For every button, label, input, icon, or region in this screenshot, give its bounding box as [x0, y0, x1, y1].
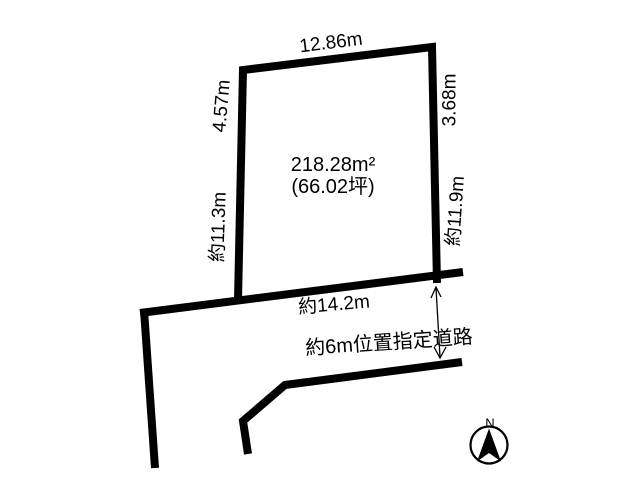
left-boundary-line [144, 310, 155, 468]
area-square-meters: 218.28m² [291, 154, 376, 176]
area-tsubo: (66.02坪) [291, 175, 374, 198]
compass: N [471, 416, 508, 464]
road-label: 約6m位置指定道路 [304, 325, 473, 360]
dimension-left-lower: 約11.3m [206, 191, 230, 262]
dimension-left-upper: 4.57m [209, 79, 235, 133]
north-arrow-icon [477, 429, 501, 462]
site-plan-drawing: 12.86m 4.57m 約11.3m 3.68m 約11.9m 約14.2m … [0, 0, 640, 480]
dimension-right-lower: 約11.9m [442, 175, 469, 247]
site-plan-diagram: 12.86m 4.57m 約11.3m 3.68m 約11.9m 約14.2m … [0, 0, 640, 480]
road-lower-edge [243, 362, 462, 454]
dimension-right-upper: 3.68m [440, 74, 461, 127]
compass-north-label: N [485, 416, 494, 431]
